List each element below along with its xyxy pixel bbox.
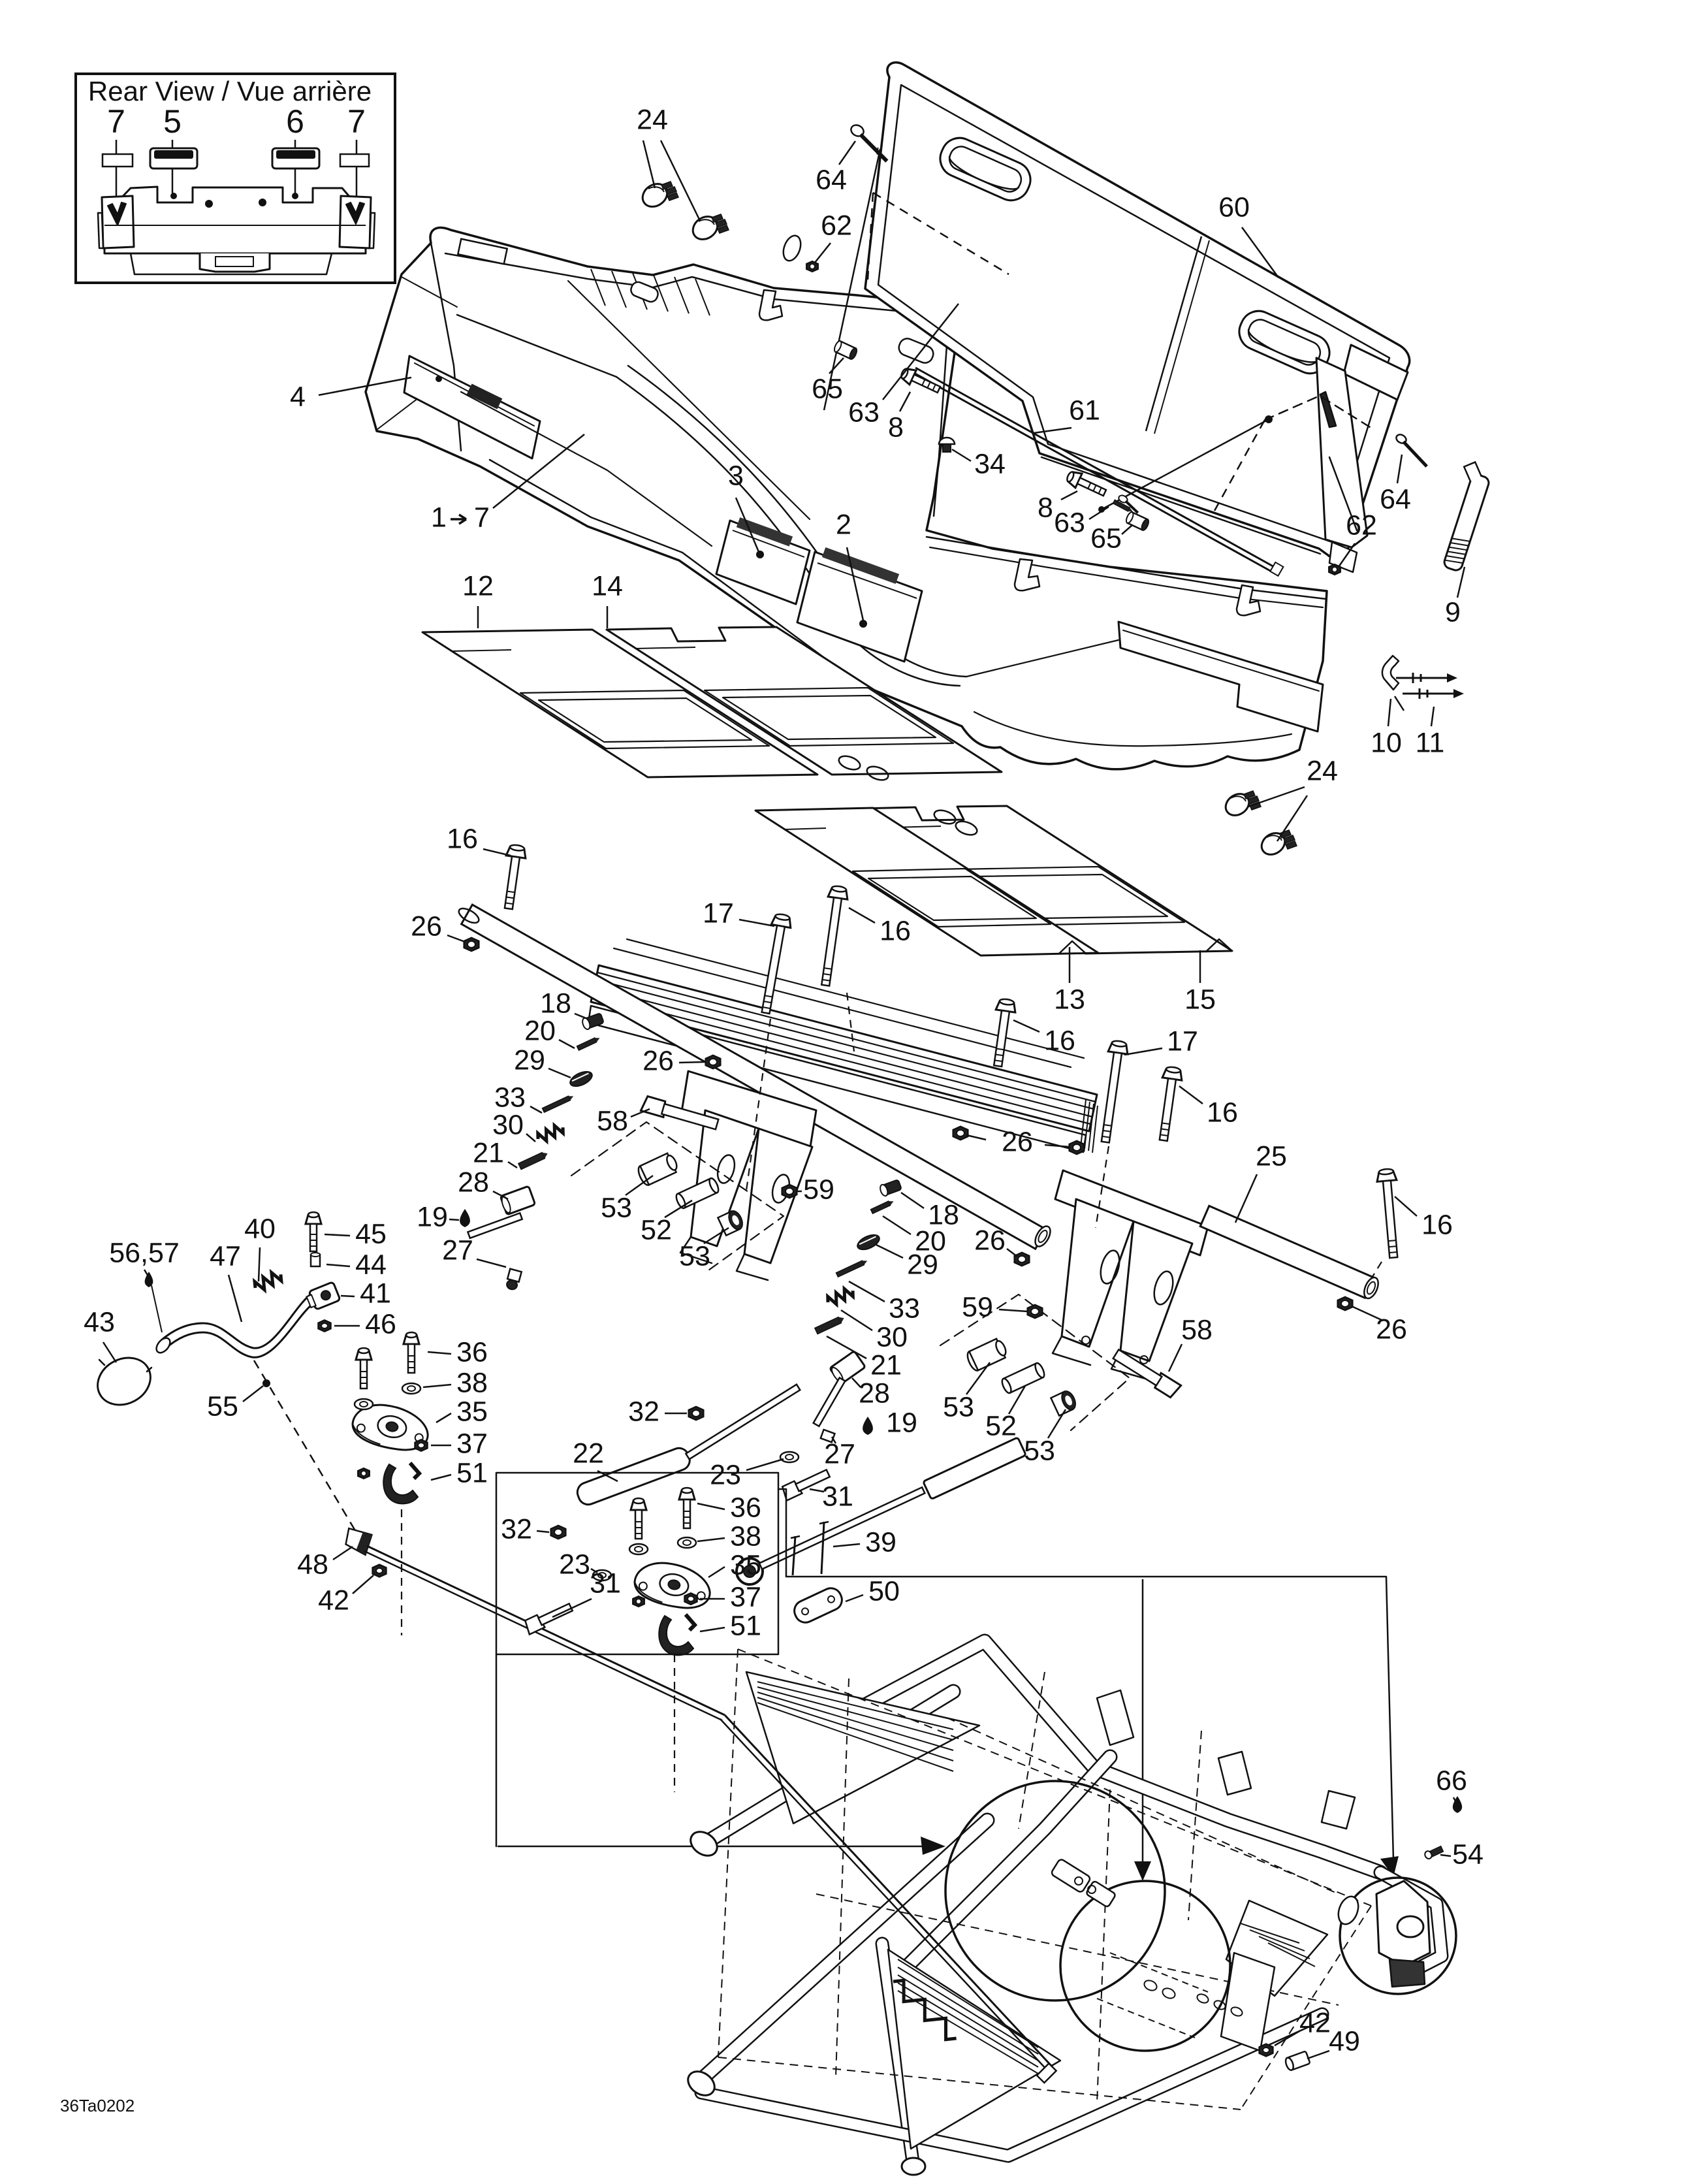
svg-text:52: 52 [985,1410,1017,1441]
svg-text:16: 16 [880,915,911,946]
svg-text:8: 8 [1038,492,1053,523]
svg-text:34: 34 [974,448,1006,479]
svg-text:39: 39 [865,1526,897,1558]
svg-text:26: 26 [411,910,442,942]
svg-text:55: 55 [207,1390,238,1422]
svg-text:3: 3 [728,460,744,491]
svg-text:64: 64 [816,164,847,195]
svg-text:65: 65 [812,373,843,404]
svg-text:16: 16 [1207,1097,1238,1128]
svg-text:33: 33 [494,1082,526,1113]
svg-text:36Ta0202: 36Ta0202 [60,2096,135,2115]
svg-text:10: 10 [1371,727,1402,758]
svg-text:31: 31 [822,1481,853,1512]
svg-text:22: 22 [573,1437,604,1469]
svg-text:5: 5 [163,103,182,140]
svg-text:28: 28 [859,1377,890,1409]
svg-text:11: 11 [1416,727,1445,758]
svg-text:37: 37 [730,1581,761,1613]
svg-text:23: 23 [559,1549,590,1580]
svg-text:43: 43 [84,1306,115,1338]
svg-text:27: 27 [824,1438,855,1469]
svg-text:53: 53 [601,1192,632,1223]
svg-text:15: 15 [1184,984,1216,1015]
svg-text:58: 58 [597,1105,628,1136]
svg-text:23: 23 [710,1459,741,1490]
svg-text:53: 53 [679,1240,710,1272]
svg-text:63: 63 [848,396,880,428]
svg-text:50: 50 [868,1575,900,1607]
svg-text:35: 35 [730,1549,761,1581]
svg-text:60: 60 [1218,191,1250,223]
svg-text:35: 35 [456,1396,488,1427]
svg-text:26: 26 [1376,1313,1407,1345]
svg-text:53: 53 [1024,1435,1055,1466]
svg-text:52: 52 [641,1214,672,1245]
svg-text:51: 51 [730,1610,761,1641]
svg-text:27: 27 [442,1234,473,1266]
svg-text:7: 7 [107,103,125,140]
svg-text:29: 29 [907,1249,938,1280]
svg-text:2: 2 [836,509,851,540]
svg-text:40: 40 [244,1213,276,1244]
svg-text:14: 14 [592,570,623,602]
svg-text:66: 66 [1436,1765,1467,1796]
svg-text:Rear View / Vue arrière: Rear View / Vue arrière [88,76,372,106]
svg-text:45: 45 [355,1218,387,1249]
svg-text:42: 42 [1299,2007,1331,2038]
svg-text:44: 44 [355,1249,387,1280]
svg-text:36: 36 [730,1492,761,1523]
svg-text:47: 47 [210,1240,241,1272]
svg-text:12: 12 [462,570,494,602]
svg-text:32: 32 [501,1513,532,1545]
svg-text:58: 58 [1181,1314,1213,1345]
svg-text:48: 48 [297,1549,328,1580]
svg-text:16: 16 [1044,1025,1075,1056]
svg-text:21: 21 [473,1137,504,1168]
svg-text:26: 26 [643,1045,674,1076]
svg-text:8: 8 [888,411,904,443]
svg-text:33: 33 [889,1293,920,1324]
svg-text:63: 63 [1054,507,1085,538]
svg-text:61: 61 [1069,394,1100,426]
svg-text:6: 6 [286,103,304,140]
svg-text:24: 24 [1307,755,1338,786]
svg-text:56,57: 56,57 [109,1237,180,1268]
svg-text:49: 49 [1329,2025,1360,2057]
svg-text:54: 54 [1452,1839,1484,1870]
svg-text:28: 28 [458,1166,489,1198]
svg-text:17: 17 [703,897,734,929]
svg-text:4: 4 [290,381,306,412]
svg-text:41: 41 [360,1277,391,1309]
svg-text:37: 37 [456,1428,488,1459]
svg-text:26: 26 [974,1225,1006,1256]
svg-text:62: 62 [1346,509,1377,541]
svg-text:32: 32 [628,1396,659,1427]
svg-text:59: 59 [962,1291,993,1323]
svg-text:17: 17 [1167,1025,1198,1057]
svg-text:7: 7 [474,502,490,533]
svg-text:38: 38 [456,1367,488,1398]
svg-text:26: 26 [1002,1126,1033,1157]
svg-text:65: 65 [1090,522,1122,554]
svg-text:64: 64 [1380,483,1411,515]
svg-text:13: 13 [1054,984,1085,1015]
svg-text:20: 20 [524,1015,556,1046]
svg-text:30: 30 [492,1109,524,1140]
svg-text:9: 9 [1445,596,1461,628]
svg-text:25: 25 [1256,1140,1287,1172]
svg-text:16: 16 [447,823,478,854]
svg-text:51: 51 [456,1457,488,1488]
svg-text:59: 59 [803,1174,834,1205]
svg-text:46: 46 [365,1308,396,1340]
svg-text:62: 62 [821,210,852,241]
svg-text:19: 19 [886,1407,917,1438]
svg-text:42: 42 [318,1584,349,1616]
svg-text:19: 19 [417,1201,448,1232]
svg-text:29: 29 [514,1044,545,1076]
svg-text:38: 38 [730,1520,761,1552]
svg-text:24: 24 [637,104,668,135]
svg-text:1: 1 [431,502,447,533]
svg-text:31: 31 [590,1567,621,1599]
svg-text:7: 7 [347,103,366,140]
svg-text:16: 16 [1421,1209,1453,1240]
svg-text:30: 30 [876,1321,908,1353]
svg-text:18: 18 [540,988,571,1019]
svg-text:36: 36 [456,1336,488,1368]
svg-text:53: 53 [943,1391,974,1422]
svg-text:21: 21 [870,1349,902,1381]
